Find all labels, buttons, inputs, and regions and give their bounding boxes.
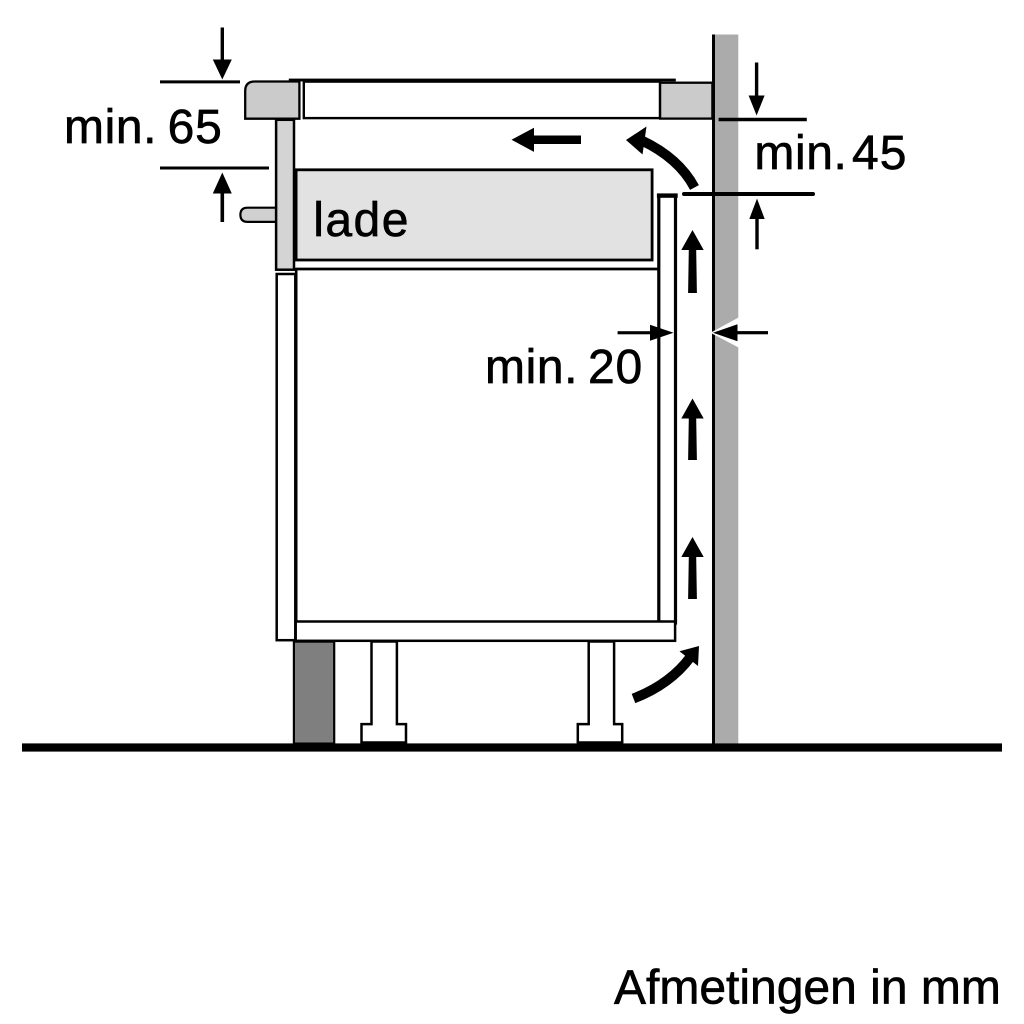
- svg-text:65: 65: [168, 101, 223, 154]
- svg-text:min.: min.: [64, 101, 157, 154]
- svg-text:lade: lade: [313, 194, 410, 247]
- svg-text:45: 45: [852, 127, 907, 180]
- svg-text:min.: min.: [485, 341, 578, 394]
- svg-text:min.: min.: [754, 127, 847, 180]
- svg-text:20: 20: [588, 341, 643, 394]
- svg-text:Afmetingen in mm: Afmetingen in mm: [614, 962, 1001, 1015]
